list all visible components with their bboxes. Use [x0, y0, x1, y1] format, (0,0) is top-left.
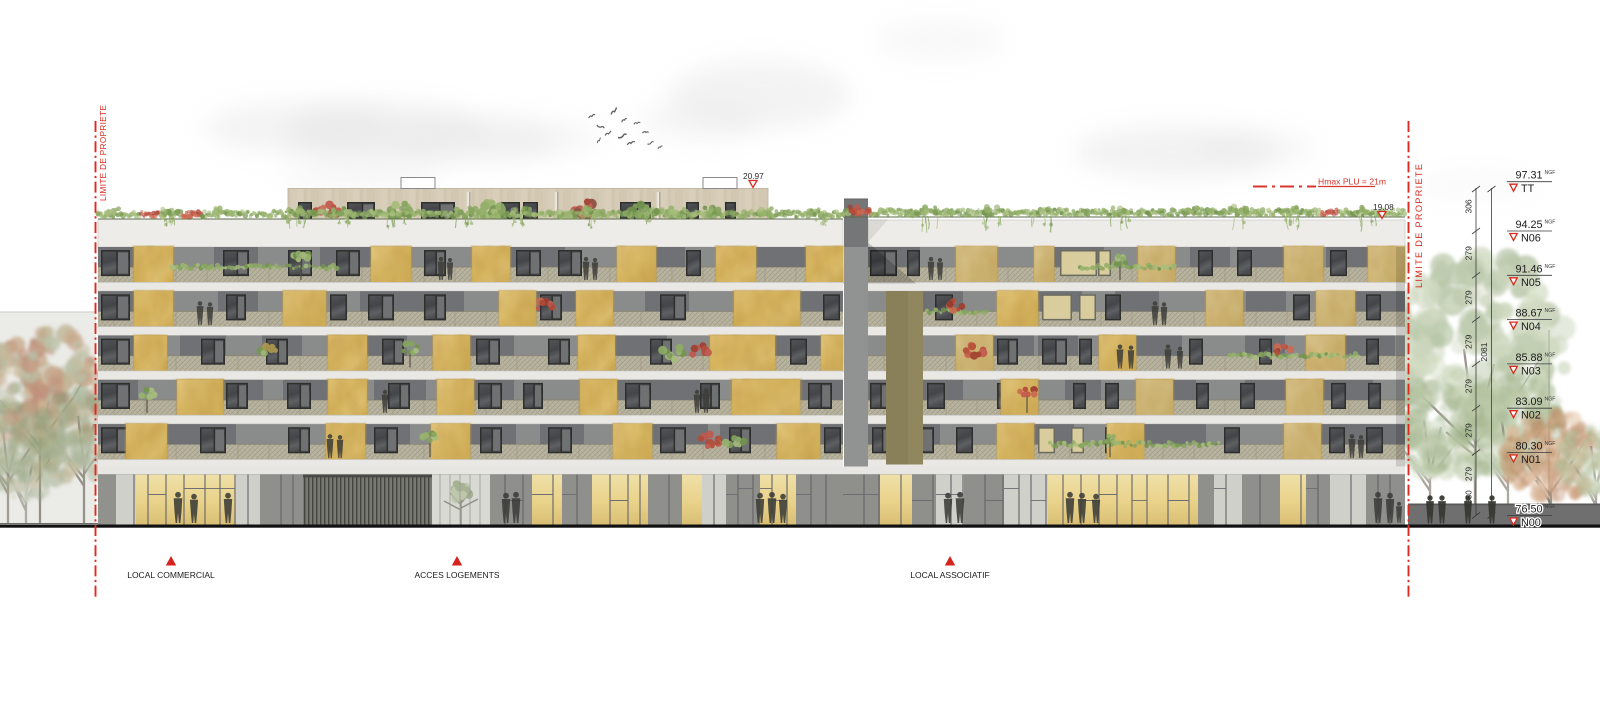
svg-text:LOCAL COMMERCIAL: LOCAL COMMERCIAL: [127, 570, 215, 580]
svg-text:NGF: NGF: [1545, 397, 1556, 403]
svg-text:20.97: 20.97: [743, 171, 764, 181]
svg-text:380: 380: [1465, 490, 1474, 504]
svg-text:N01: N01: [1521, 454, 1541, 466]
svg-text:279: 279: [1464, 423, 1474, 438]
svg-text:NGF: NGF: [1545, 504, 1556, 510]
svg-text:NGF: NGF: [1545, 170, 1556, 176]
svg-text:279: 279: [1464, 334, 1474, 349]
svg-text:NGF: NGF: [1545, 308, 1556, 314]
svg-text:N02: N02: [1521, 410, 1541, 422]
svg-text:NGF: NGF: [1545, 441, 1556, 447]
svg-text:279: 279: [1464, 467, 1474, 482]
svg-text:76.50: 76.50: [1515, 504, 1542, 516]
svg-text:NGF: NGF: [1545, 264, 1556, 270]
svg-text:85.88: 85.88: [1515, 352, 1542, 364]
svg-text:88.67: 88.67: [1515, 308, 1542, 320]
svg-text:80.30: 80.30: [1515, 441, 1542, 453]
svg-text:306: 306: [1464, 199, 1474, 214]
svg-text:91.46: 91.46: [1515, 263, 1542, 275]
svg-text:N00: N00: [1521, 517, 1541, 529]
svg-text:TT: TT: [1521, 183, 1535, 195]
svg-text:N03: N03: [1521, 365, 1541, 377]
svg-text:LOCAL ASSOCIATIF: LOCAL ASSOCIATIF: [910, 570, 989, 580]
svg-text:LIMITE DE PROPRIETE: LIMITE DE PROPRIETE: [1414, 163, 1424, 288]
svg-text:ACCES LOGEMENTS: ACCES LOGEMENTS: [414, 570, 499, 580]
svg-text:N04: N04: [1521, 321, 1541, 333]
svg-text:97.31: 97.31: [1515, 170, 1542, 182]
svg-text:LIMITE DE PROPRIETE: LIMITE DE PROPRIETE: [99, 105, 108, 201]
svg-text:2081: 2081: [1479, 342, 1489, 361]
svg-text:NGF: NGF: [1545, 352, 1556, 358]
svg-text:279: 279: [1464, 379, 1474, 394]
svg-text:N05: N05: [1521, 277, 1541, 289]
svg-text:19.08: 19.08: [1373, 202, 1394, 212]
svg-text:279: 279: [1464, 290, 1474, 305]
svg-text:83.09: 83.09: [1515, 396, 1542, 408]
svg-text:N06: N06: [1521, 233, 1541, 245]
svg-text:NGF: NGF: [1545, 220, 1556, 226]
svg-text:Hmax PLU = 21m: Hmax PLU = 21m: [1318, 177, 1386, 187]
svg-text:94.25: 94.25: [1515, 219, 1542, 231]
svg-text:279: 279: [1464, 246, 1474, 261]
